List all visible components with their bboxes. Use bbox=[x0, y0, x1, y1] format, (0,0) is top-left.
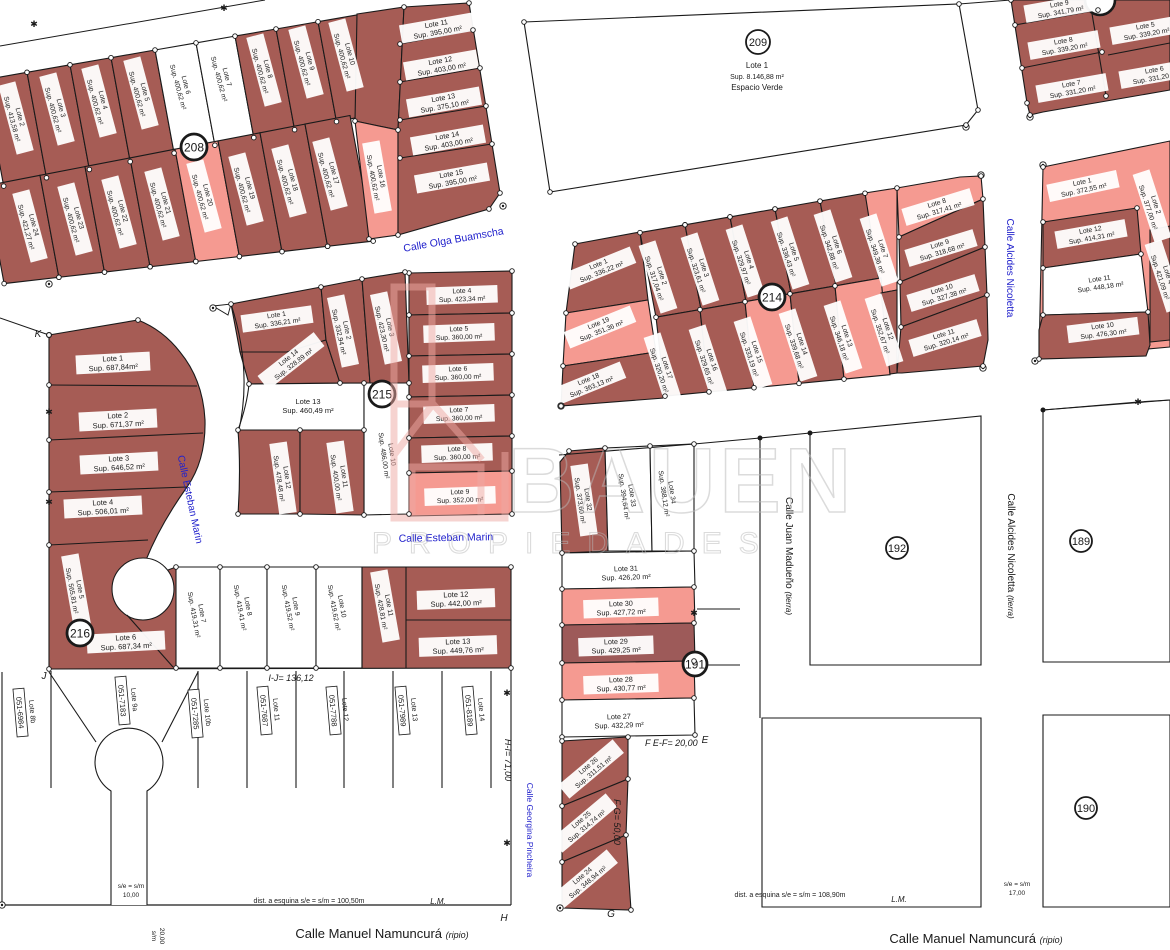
svg-text:215: 215 bbox=[372, 387, 392, 401]
svg-text:I-J= 136,12: I-J= 136,12 bbox=[268, 673, 313, 683]
svg-text:G: G bbox=[607, 909, 615, 920]
svg-text:Calle Manuel Namuncurá (ripio): Calle Manuel Namuncurá (ripio) bbox=[295, 926, 468, 941]
svg-text:Sup. 432,29 m²: Sup. 432,29 m² bbox=[594, 720, 644, 731]
svg-text:Sup. 8.146,88 m²: Sup. 8.146,88 m² bbox=[730, 74, 784, 81]
svg-text:✱: ✱ bbox=[30, 19, 38, 29]
svg-text:s/e = s/m: s/e = s/m bbox=[1004, 881, 1031, 888]
svg-text:10,00: 10,00 bbox=[123, 892, 140, 899]
svg-text:Sup. 449,76 m²: Sup. 449,76 m² bbox=[432, 645, 484, 656]
svg-text:Lote 7: Lote 7 bbox=[449, 407, 468, 415]
svg-text:Lote 6: Lote 6 bbox=[448, 366, 467, 374]
svg-text:Espacio Verde: Espacio Verde bbox=[731, 83, 783, 92]
svg-text:dist. a esquina s/e = s/m = 10: dist. a esquina s/e = s/m = 100,50m bbox=[254, 898, 365, 905]
svg-text:209: 209 bbox=[749, 37, 767, 49]
svg-text:Calle Alcides Nicoletta: Calle Alcides Nicoletta bbox=[1004, 219, 1015, 318]
svg-text:Lote 1: Lote 1 bbox=[746, 61, 769, 70]
svg-text:dist. a esquina s/e = s/m = 10: dist. a esquina s/e = s/m = 108,90m bbox=[735, 892, 846, 899]
svg-text:F-G= 50,00: F-G= 50,00 bbox=[612, 799, 622, 845]
svg-text:H: H bbox=[500, 913, 508, 924]
svg-text:Sup. 429,25 m²: Sup. 429,25 m² bbox=[591, 645, 641, 656]
svg-text:Lote 5: Lote 5 bbox=[449, 326, 468, 334]
svg-text:✱: ✱ bbox=[690, 608, 698, 618]
svg-text:✱: ✱ bbox=[220, 3, 228, 13]
svg-text:PROPIEDADES: PROPIEDADES bbox=[372, 527, 776, 560]
svg-text:Sup. 442,00 m²: Sup. 442,00 m² bbox=[430, 598, 482, 609]
svg-text:E: E bbox=[702, 735, 709, 746]
svg-text:Calle Alcides Nicoletta (tierr: Calle Alcides Nicoletta (tierra) bbox=[1005, 493, 1016, 619]
svg-text:✱: ✱ bbox=[1134, 397, 1142, 407]
svg-text:Calle Manuel Namuncurá (ripio): Calle Manuel Namuncurá (ripio) bbox=[889, 931, 1062, 946]
svg-text:✱: ✱ bbox=[503, 838, 511, 848]
svg-text:190: 190 bbox=[1077, 803, 1095, 815]
svg-text:H-I= 71,00: H-I= 71,00 bbox=[503, 739, 513, 781]
svg-text:17,00: 17,00 bbox=[1009, 890, 1026, 897]
svg-text:Lote 4: Lote 4 bbox=[452, 288, 471, 296]
svg-text:Sup. 427,72 m²: Sup. 427,72 m² bbox=[596, 607, 646, 618]
svg-text:216: 216 bbox=[70, 626, 90, 640]
svg-text:s/e = s/m: s/e = s/m bbox=[118, 883, 145, 890]
svg-text:L.M.: L.M. bbox=[430, 897, 446, 906]
svg-text:20,00: 20,00 bbox=[158, 928, 165, 945]
svg-text:✱: ✱ bbox=[503, 688, 511, 698]
svg-text:208: 208 bbox=[184, 140, 204, 154]
svg-text:F E-F= 20,00: F E-F= 20,00 bbox=[645, 738, 698, 748]
svg-text:✱: ✱ bbox=[45, 407, 53, 417]
svg-text:Lote 8: Lote 8 bbox=[447, 446, 466, 454]
svg-text:BAUEN: BAUEN bbox=[508, 430, 855, 532]
svg-text:189: 189 bbox=[1072, 536, 1090, 548]
svg-text:Sup. 460,49 m²: Sup. 460,49 m² bbox=[282, 406, 334, 415]
svg-text:192: 192 bbox=[888, 543, 906, 555]
svg-text:Calle Georgina Pincheira: Calle Georgina Pincheira bbox=[525, 783, 535, 878]
svg-text:✱: ✱ bbox=[45, 497, 53, 507]
svg-text:Lote 13: Lote 13 bbox=[295, 397, 320, 406]
svg-text:Lote 9: Lote 9 bbox=[450, 489, 469, 497]
svg-text:214: 214 bbox=[762, 290, 782, 304]
svg-text:Sup. 430,77 m²: Sup. 430,77 m² bbox=[596, 683, 646, 694]
svg-text:Sup. 426,20 m²: Sup. 426,20 m² bbox=[601, 572, 651, 583]
svg-text:s/m: s/m bbox=[150, 931, 157, 941]
svg-text:J: J bbox=[41, 671, 48, 682]
svg-text:L.M.: L.M. bbox=[891, 895, 907, 904]
